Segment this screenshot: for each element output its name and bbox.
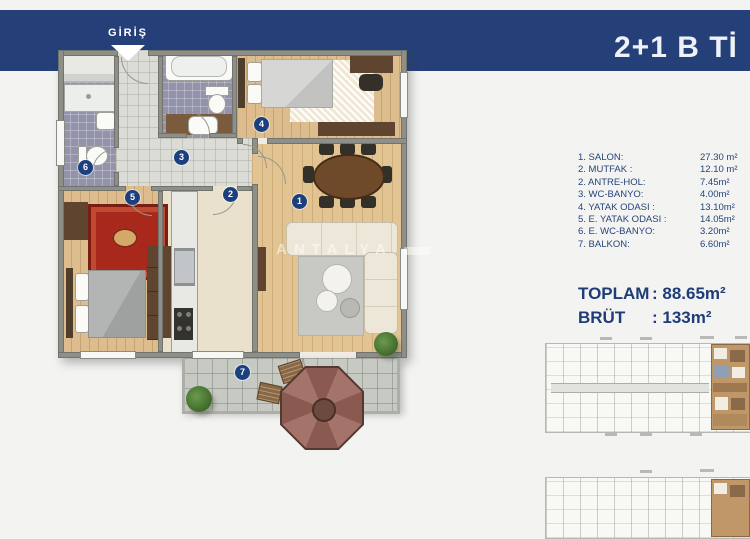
room-label: 3. WC-BANYO: bbox=[578, 189, 700, 201]
dimension-mark bbox=[640, 337, 652, 340]
pillow bbox=[75, 305, 89, 333]
wall bbox=[148, 50, 407, 56]
wall bbox=[158, 56, 163, 138]
sink bbox=[96, 112, 116, 130]
toplam-value: : 88.65m² bbox=[652, 284, 726, 304]
wall bbox=[58, 50, 64, 358]
wall bbox=[267, 138, 407, 144]
dimension-mark bbox=[690, 433, 702, 436]
room-badge-eyatak: 5 bbox=[125, 190, 140, 205]
window bbox=[400, 248, 408, 310]
bathtub-inner bbox=[171, 56, 227, 77]
coffee-table-small bbox=[316, 290, 338, 312]
list-row: 1. SALON:27.30 m² bbox=[578, 152, 738, 164]
wall bbox=[158, 191, 163, 352]
dimension-mark bbox=[735, 336, 747, 339]
dimension-mark bbox=[700, 469, 714, 472]
wall bbox=[58, 186, 126, 191]
totals-block: TOPLAM: 88.65m² BRÜT: 133m² bbox=[578, 284, 726, 332]
toplam-label: TOPLAM bbox=[578, 284, 652, 304]
room-area: 7.45m² bbox=[700, 177, 730, 189]
room-label: 5. E. YATAK ODASI : bbox=[578, 214, 700, 226]
room-badge-yatak: 4 bbox=[254, 117, 269, 132]
watermark-mark bbox=[404, 247, 430, 255]
window bbox=[192, 351, 244, 359]
brut-label: BRÜT bbox=[578, 308, 652, 328]
wall bbox=[114, 56, 119, 148]
dimension-mark bbox=[640, 470, 652, 473]
toilet bbox=[208, 94, 226, 114]
pillow bbox=[247, 62, 262, 82]
window bbox=[400, 72, 408, 118]
pillow bbox=[247, 84, 262, 104]
kitchen-sink bbox=[174, 248, 195, 286]
kitchen-tall-units bbox=[163, 246, 171, 338]
plant bbox=[186, 386, 212, 412]
plan-type-title: 2+1 B Tİ bbox=[614, 31, 738, 65]
headboard bbox=[238, 58, 245, 108]
keyplan-room bbox=[713, 383, 747, 392]
plant bbox=[374, 332, 398, 356]
wall bbox=[252, 184, 258, 352]
list-row: 2. ANTRE-HOL:7.45m² bbox=[578, 177, 738, 189]
keyplan-room bbox=[732, 367, 745, 378]
floorplan-brochure-page: { "banner": { "title": "2+1 B Tİ", "entr… bbox=[0, 0, 750, 500]
dining-chair bbox=[361, 143, 376, 155]
room-label: 2. ANTRE-HOL: bbox=[578, 177, 700, 189]
shower-drain bbox=[86, 94, 91, 99]
wardrobe bbox=[64, 202, 88, 240]
dining-table bbox=[313, 154, 385, 200]
gazebo-cap bbox=[312, 398, 336, 422]
bed-duvet bbox=[88, 270, 146, 338]
watermark: ANTALYA bbox=[276, 241, 393, 258]
room-area: 14.05m² bbox=[700, 214, 735, 226]
keyplan-room bbox=[713, 414, 747, 426]
burner bbox=[186, 326, 191, 331]
toplam-row: TOPLAM: 88.65m² bbox=[578, 284, 726, 304]
wall bbox=[158, 133, 187, 138]
keyplan-room bbox=[714, 365, 729, 378]
burner bbox=[177, 326, 182, 331]
burner bbox=[186, 312, 191, 317]
room-label: 1. SALON: bbox=[578, 152, 700, 164]
tv-console bbox=[257, 247, 266, 291]
list-row: 7. BALKON:6.60m² bbox=[578, 239, 738, 251]
room-area: 13.10m² bbox=[700, 202, 735, 214]
sofa-chaise bbox=[364, 252, 398, 334]
headboard bbox=[66, 268, 73, 338]
list-row: 3. WC-BANYO:4.00m² bbox=[578, 189, 738, 201]
list-row: 4. YATAK ODASI :13.10m² bbox=[578, 202, 738, 214]
room-label: 6. E. WC-BANYO: bbox=[578, 226, 700, 238]
pillow bbox=[75, 273, 89, 301]
keyplan-room bbox=[731, 398, 745, 410]
dimension-mark bbox=[640, 433, 652, 436]
burner bbox=[177, 312, 182, 317]
ottoman bbox=[340, 298, 360, 318]
room-area: 6.60m² bbox=[700, 239, 730, 251]
dimension-mark bbox=[600, 337, 612, 340]
room-label: 2. MUTFAK : bbox=[578, 164, 700, 176]
room-area: 27.30 m² bbox=[700, 152, 738, 164]
room-area-list: 1. SALON:27.30 m² 2. MUTFAK :12.10 m² 2.… bbox=[578, 152, 738, 251]
keyplan-corridor bbox=[551, 383, 709, 393]
brut-row: BRÜT: 133m² bbox=[578, 308, 726, 328]
keyplan-room bbox=[714, 483, 727, 494]
desk-chair bbox=[359, 74, 383, 91]
dresser bbox=[318, 122, 395, 136]
room-badge-mutfak: 2 bbox=[223, 187, 238, 202]
list-row: 6. E. WC-BANYO:3.20m² bbox=[578, 226, 738, 238]
window bbox=[80, 351, 136, 359]
entrance-arrow-icon bbox=[111, 45, 145, 61]
room-label: 7. BALKON: bbox=[578, 239, 700, 251]
keyplan-room bbox=[730, 485, 745, 497]
entrance-label: GİRİŞ bbox=[96, 27, 160, 39]
keyplan-room bbox=[730, 350, 745, 362]
dining-chair bbox=[319, 143, 334, 155]
list-row: 2. MUTFAK :12.10 m² bbox=[578, 164, 738, 176]
room-area: 3.20m² bbox=[700, 226, 730, 238]
room-badge-ewc: 6 bbox=[78, 160, 93, 175]
room-badge-balkon: 7 bbox=[235, 365, 250, 380]
dimension-mark bbox=[700, 336, 714, 339]
dining-chair bbox=[319, 196, 334, 208]
dimension-mark bbox=[605, 433, 617, 436]
keyplan-room bbox=[714, 348, 727, 359]
list-row: 5. E. YATAK ODASI :14.05m² bbox=[578, 214, 738, 226]
room-label: 4. YATAK ODASI : bbox=[578, 202, 700, 214]
room-badge-antre: 3 bbox=[174, 150, 189, 165]
wall bbox=[114, 172, 119, 186]
balcony-edge bbox=[397, 358, 400, 414]
balcony-edge bbox=[182, 358, 185, 414]
wall bbox=[232, 56, 237, 138]
room-area: 12.10 m² bbox=[700, 164, 738, 176]
brut-value: : 133m² bbox=[652, 308, 712, 328]
keyplan-room bbox=[715, 397, 728, 410]
window bbox=[56, 120, 65, 166]
wall bbox=[58, 50, 118, 56]
bed-duvet bbox=[261, 59, 333, 108]
wall bbox=[237, 186, 252, 191]
room-area: 4.00m² bbox=[700, 189, 730, 201]
carpet-medallion bbox=[112, 228, 138, 248]
wall bbox=[209, 133, 237, 138]
room-badge-salon: 1 bbox=[292, 194, 307, 209]
